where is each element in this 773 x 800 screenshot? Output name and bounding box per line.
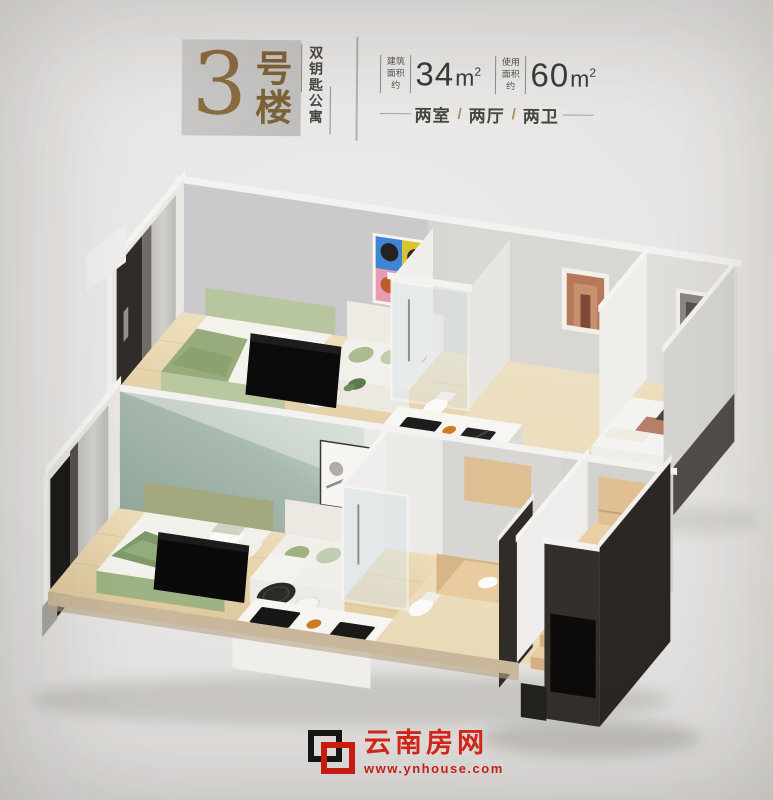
- tagline-text: 双钥匙公寓: [302, 44, 331, 134]
- usable-area-spec: 使用 面积约 60m2: [495, 56, 596, 95]
- area-specs: 建筑 面积约 34m2 使用 面积约 60m2: [380, 55, 611, 128]
- brand-url: www.ynhouse.com: [364, 761, 504, 776]
- brand-logo-icon: [308, 727, 360, 779]
- building-suffix: 号楼: [250, 49, 291, 127]
- layout-livingrooms: 两厅: [469, 102, 505, 127]
- layout-bathrooms: 两卫: [523, 102, 559, 127]
- tagline-vertical: 双钥匙公寓: [301, 44, 332, 134]
- floorplan-poster: 3 号楼 双钥匙公寓 建筑 面积约 34m2: [0, 0, 773, 800]
- brand-watermark: 云南房网 www.ynhouse.com: [308, 727, 504, 779]
- usable-area-label: 使用 面积约: [495, 56, 527, 93]
- layout-left-rule: [380, 113, 411, 114]
- layout-right-rule: [563, 115, 594, 116]
- tower-tv-screen: [550, 613, 595, 698]
- logo-red-square-icon: [321, 742, 355, 774]
- brand-name: 云南房网: [364, 730, 504, 757]
- layout-bedrooms: 两室: [414, 101, 450, 126]
- built-area-label: 建筑 面积约: [380, 55, 412, 92]
- room-layout-line: 两室/两厅/两卫: [380, 101, 594, 128]
- header: 3 号楼 双钥匙公寓 建筑 面积约 34m2: [0, 0, 773, 163]
- building-number: 3: [192, 41, 247, 127]
- shower-glass: [391, 281, 468, 411]
- building-number-box: 3 号楼: [182, 39, 302, 136]
- built-area-value: 34m2: [415, 55, 481, 94]
- built-area-spec: 建筑 面积约 34m2: [380, 55, 481, 94]
- tagline-right-rule: [330, 87, 331, 135]
- header-divider: [355, 37, 358, 141]
- shower-glass: [343, 486, 408, 610]
- usable-area-value: 60m2: [530, 56, 596, 95]
